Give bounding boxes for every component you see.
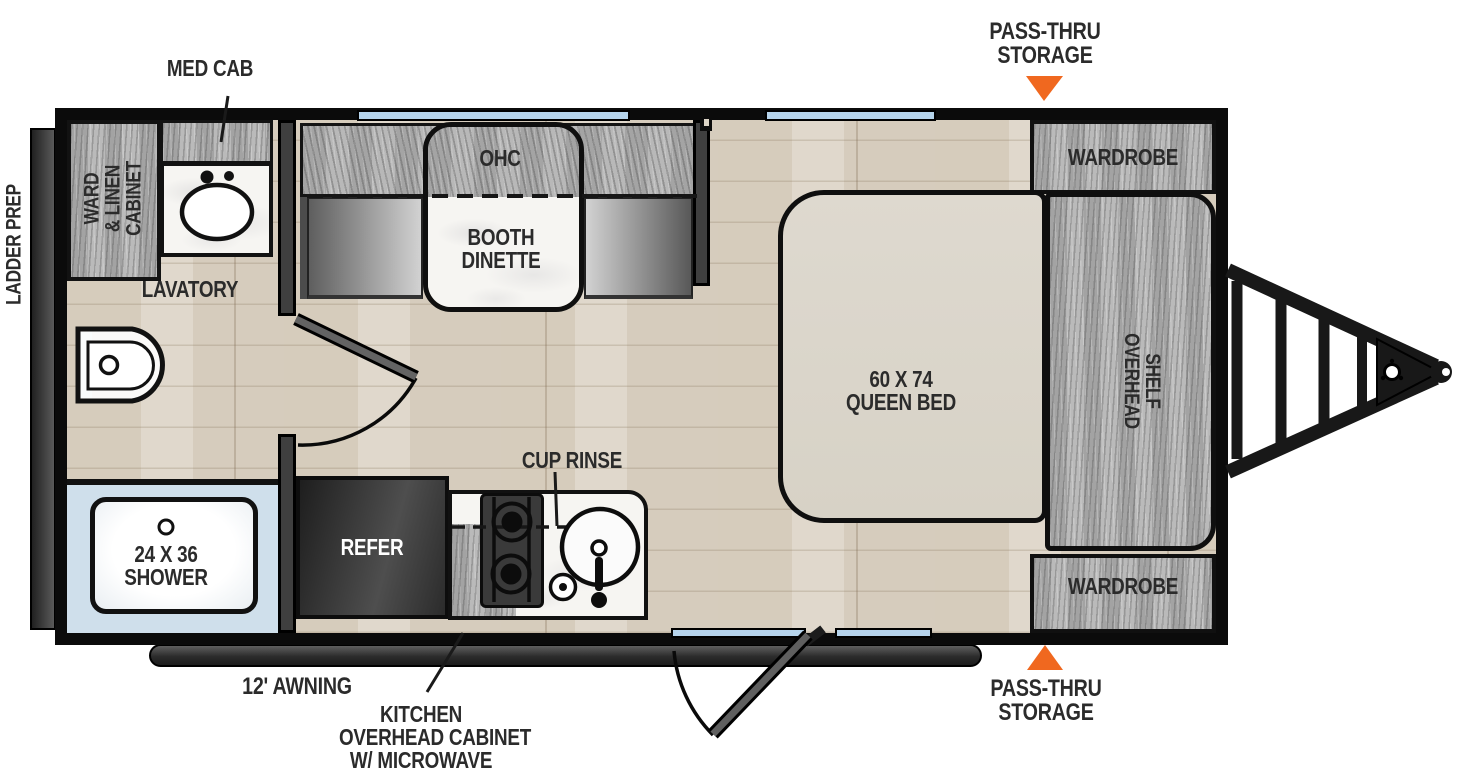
lavatory-label: LAVATORY (110, 278, 270, 301)
window (765, 110, 936, 121)
window (357, 110, 630, 121)
pass-thru-storage-top-label: PASS-THRU STORAGE (965, 20, 1125, 68)
ohc-label: OHC (440, 147, 560, 170)
window (835, 628, 932, 638)
kitchen-ohc-label: KITCHEN OVERHEAD CABINET W/ MICROWAVE (321, 703, 521, 768)
wardrobe-bottom-label: WARDROBE (1043, 575, 1203, 598)
med-cab-label: MED CAB (130, 57, 290, 80)
floorplan-diagram: MED CAB PASS-THRU STORAGE LADDER PREP WA… (0, 0, 1458, 768)
shower-label: 24 X 36 SHOWER (86, 543, 246, 589)
cup-rinse-label: CUP RINSE (492, 449, 652, 472)
queen-bed-label: 60 X 74 QUEEN BED (801, 368, 1001, 414)
awning-label: 12' AWNING (217, 675, 377, 699)
trailer-hitch-icon (1228, 270, 1452, 472)
ladder-prep-rail (30, 128, 56, 630)
overhead-shelf-label: SHELF OVERHEAD (1121, 271, 1163, 491)
booth-dinette-label: BOOTH DINETTE (421, 226, 581, 272)
pass-thru-arrow-down-icon (1026, 76, 1063, 101)
pass-thru-storage-bottom-label: PASS-THRU STORAGE (966, 677, 1126, 725)
ward-linen-cabinet-label: WARD & LINEN CABINET (82, 99, 145, 299)
refer-label: REFER (312, 536, 432, 559)
awning-bar (149, 644, 982, 667)
pass-thru-arrow-up-icon (1027, 645, 1063, 670)
wardrobe-top-label: WARDROBE (1043, 146, 1203, 169)
ladder-prep-label: LADDER PREP (4, 135, 25, 355)
window (671, 628, 806, 638)
